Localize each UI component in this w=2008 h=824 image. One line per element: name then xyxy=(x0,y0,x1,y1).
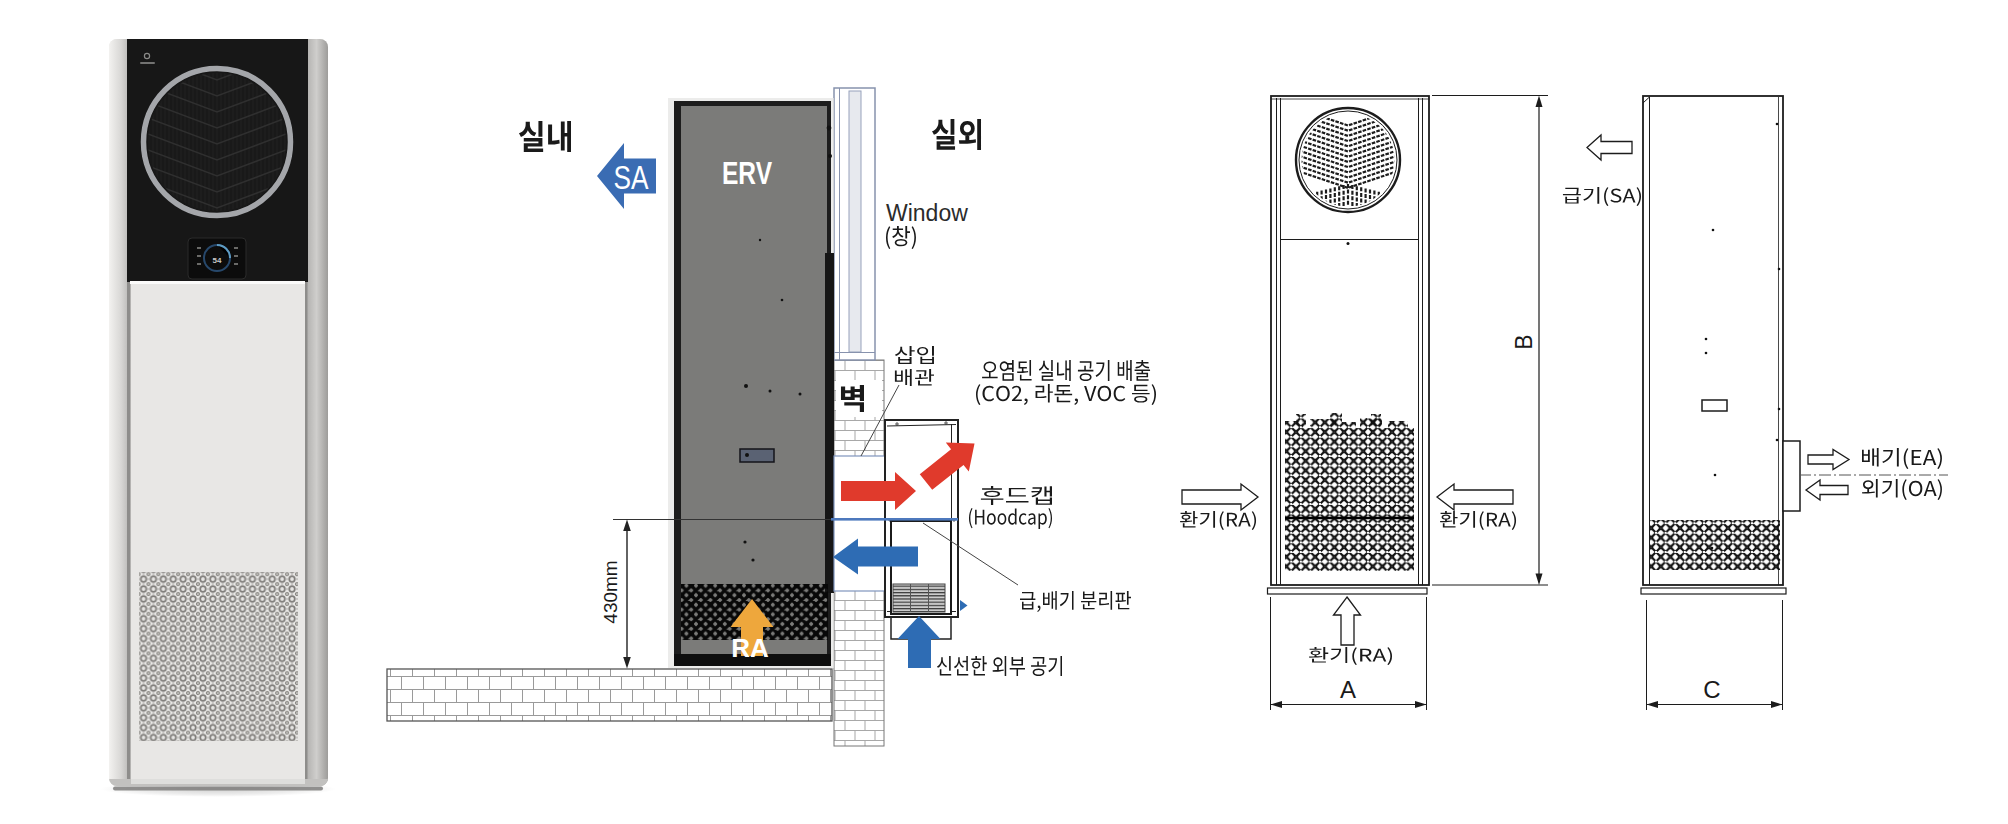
svg-text:ERV: ERV xyxy=(722,155,773,191)
svg-text:C: C xyxy=(1703,676,1720,703)
svg-text:B: B xyxy=(1511,334,1537,349)
svg-text:A: A xyxy=(1340,676,1356,703)
svg-text:RA: RA xyxy=(731,633,769,663)
svg-text:54: 54 xyxy=(213,256,222,265)
svg-text:SA: SA xyxy=(614,158,649,196)
svg-text:Window: Window xyxy=(886,200,968,226)
svg-text:430mm: 430mm xyxy=(600,560,621,623)
